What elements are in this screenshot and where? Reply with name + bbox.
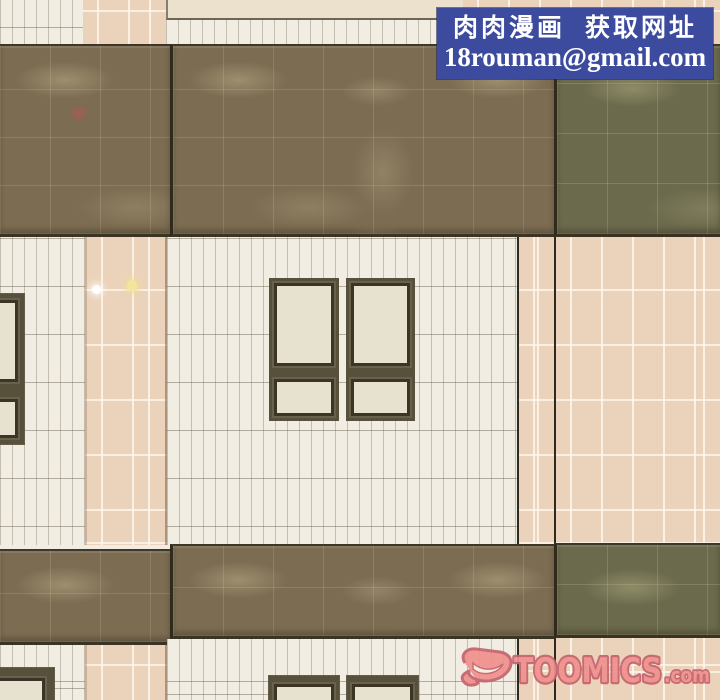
marble-band-lower-right-slab — [554, 543, 720, 638]
comic-panel: 肉肉漫画 获取网址 18rouman@gmail.com TOOMICS .co… — [0, 0, 720, 700]
toomics-watermark-tld: .com — [664, 663, 710, 687]
top-strip-white-tiles-left — [0, 0, 83, 46]
main-window-right-sash — [346, 278, 416, 421]
main-window-left-sash — [269, 278, 339, 421]
marble-band-lower-middle-slab — [170, 544, 554, 639]
marble-band-upper-left-slab — [0, 44, 170, 237]
wall-pink-column-left — [85, 237, 167, 545]
toomics-d-logo-icon — [462, 649, 511, 685]
left-edge-window-upper-pane — [0, 300, 18, 382]
toomics-watermark-text: TOOMICS — [514, 651, 662, 691]
bottom-window-left-pane — [274, 684, 334, 700]
main-window-right-divider — [351, 366, 411, 379]
wall-pink-column-right — [517, 237, 554, 545]
bottom-left-window-pane — [0, 678, 45, 700]
ad-banner-site-name: 肉肉漫画 获取网址 — [453, 14, 697, 43]
ad-banner: 肉肉漫画 获取网址 18rouman@gmail.com — [437, 8, 713, 79]
main-window-right-lower-pane — [351, 379, 411, 416]
main-window-right-upper-pane — [351, 283, 411, 366]
bottom-left-window-partial — [0, 667, 55, 700]
top-strip-white-tiles-mid — [166, 20, 463, 46]
left-edge-window-lower-pane — [0, 399, 18, 438]
ad-banner-email: 18rouman@gmail.com — [444, 42, 706, 73]
red-smudge — [72, 107, 86, 119]
toomics-watermark-svg: TOOMICS .com — [456, 641, 716, 699]
left-edge-window-divider — [0, 382, 18, 399]
toomics-watermark: TOOMICS .com — [456, 641, 716, 699]
main-window — [269, 278, 415, 421]
bottom-window-right-pane — [352, 684, 413, 700]
left-edge-window — [0, 293, 25, 445]
main-window-left-lower-pane — [274, 379, 334, 416]
bottom-window-left-sash — [268, 675, 340, 700]
wall-pink-field-right — [554, 237, 720, 545]
top-strip-pink-tiles — [83, 0, 166, 46]
main-window-left-divider — [274, 366, 334, 379]
sparkle-yellow — [127, 280, 137, 291]
bottom-pink-column-left — [85, 645, 167, 700]
main-window-left-upper-pane — [274, 283, 334, 366]
marble-band-lower-left-slab — [0, 549, 170, 645]
top-strip-cream-band — [166, 0, 463, 20]
bottom-window-right-sash — [346, 675, 419, 700]
sparkle-white — [92, 285, 101, 294]
